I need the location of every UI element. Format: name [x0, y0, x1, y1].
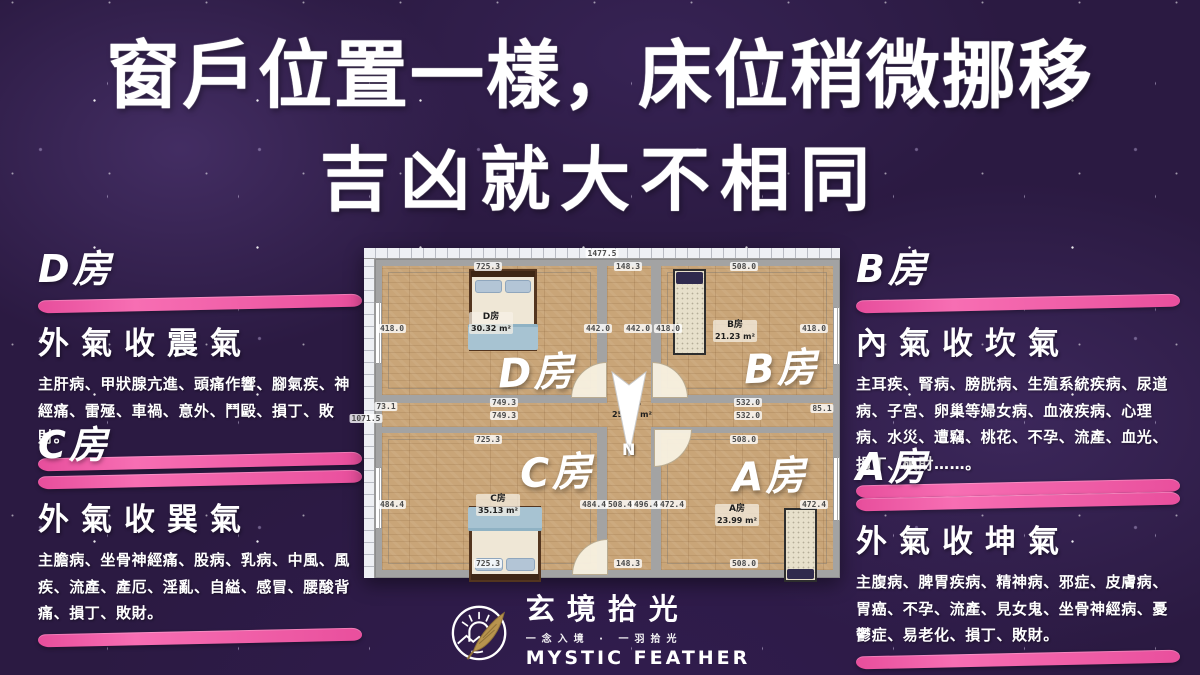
dimension-label: 418.0	[800, 324, 828, 333]
pink-brush-divider	[38, 470, 362, 490]
section-room-b-qi: 內氣收坎氣	[856, 318, 1180, 363]
room-c-big-label: C房	[519, 439, 594, 500]
dimension-label: 725.3	[474, 435, 502, 444]
section-room-b-title: B房	[856, 238, 1180, 293]
section-room-c-qi: 外氣收巽氣	[38, 494, 362, 539]
room-d-label: D房 30.32 m²	[469, 312, 513, 334]
dimension-label: 148.3	[614, 559, 642, 568]
bed-pillow	[676, 272, 703, 284]
pink-brush-divider	[856, 492, 1180, 512]
corridor-horizontal-floor	[382, 403, 833, 427]
section-room-d-qi: 外氣收震氣	[38, 318, 362, 363]
room-a-big-label: A房	[731, 443, 808, 504]
headline-line1: 窗戶位置一樣，床位稍微挪移	[0, 16, 1200, 123]
dimension-label: 484.4	[378, 500, 406, 509]
bed-room-b	[673, 269, 706, 355]
dimension-label: 508.4	[606, 500, 634, 509]
section-room-a-qi: 外氣收坤氣	[856, 516, 1180, 561]
dimension-label: 508.0	[730, 262, 758, 271]
dimension-label: 749.3	[490, 411, 518, 420]
compass-n-label: N	[622, 440, 635, 459]
section-room-a-title: A房	[856, 436, 1180, 491]
brand-name: 玄境拾光	[526, 594, 751, 626]
bed-pillow	[787, 569, 814, 579]
bed-room-d	[469, 269, 537, 351]
bed-room-c	[469, 506, 541, 582]
dimension-label: 725.3	[474, 559, 502, 568]
pink-brush-divider	[856, 294, 1180, 314]
bed-headboard	[471, 271, 535, 277]
dimension-label: 418.0	[654, 324, 682, 333]
dimension-label: 725.3	[474, 262, 502, 271]
brand-tagline: 一念入境 · 一羽拾光	[526, 629, 751, 645]
floor-plan-body	[375, 259, 840, 578]
window-room-a-right	[833, 457, 840, 521]
dimension-label: 472.4	[658, 500, 686, 509]
dimension-label: 472.4	[800, 500, 828, 509]
dimension-label: 496.4	[632, 500, 660, 509]
dimension-label: 418.0	[378, 324, 406, 333]
mystic-feather-logo-icon	[450, 601, 512, 663]
section-room-d-title: D房	[38, 238, 362, 293]
dimension-label: 442.0	[624, 324, 652, 333]
dimension-label: 508.0	[730, 435, 758, 444]
window-room-c-left	[375, 467, 382, 529]
brand-text-block: 玄境拾光 一念入境 · 一羽拾光 MYSTIC FEATHER	[526, 594, 751, 669]
section-room-c-title: C房	[38, 414, 362, 469]
brand-logo: 玄境拾光 一念入境 · 一羽拾光 MYSTIC FEATHER	[0, 594, 1200, 669]
dimension-label: 1071.5	[350, 414, 383, 423]
room-d-big-label: D房	[497, 339, 576, 400]
bed-pillows	[472, 279, 534, 294]
room-c-label: C房 35.13 m²	[476, 494, 520, 516]
dimension-label: 442.0	[584, 324, 612, 333]
window-room-d-left	[375, 302, 382, 364]
headline-line2: 吉凶就大不相同	[0, 124, 1200, 225]
dimension-label: 1477.5	[586, 249, 619, 258]
window-room-b-right	[833, 307, 840, 365]
brand-english-name: MYSTIC FEATHER	[526, 647, 751, 669]
room-a-label: A房 23.99 m²	[715, 504, 759, 526]
poster: 窗戶位置一樣，床位稍微挪移 吉凶就大不相同 D房 外氣收震氣 主肝病、甲狀腺亢進…	[0, 0, 1200, 675]
bed-room-a	[784, 508, 817, 582]
bed-headboard	[471, 574, 539, 580]
dimension-label: 85.1	[810, 404, 833, 413]
dimension-label: 749.3	[490, 398, 518, 407]
dimension-label: 532.0	[734, 398, 762, 407]
pink-brush-divider	[38, 294, 362, 314]
dimension-label: 484.4	[580, 500, 608, 509]
dimension-label: 148.3	[614, 262, 642, 271]
dimension-label: 532.0	[734, 411, 762, 420]
dimension-label: 508.0	[730, 559, 758, 568]
dimension-label: 73.1	[374, 402, 397, 411]
room-b-big-label: B房	[743, 335, 819, 396]
floor-plan: D房 30.32 m² B房 21.23 m² C房 35.13 m² A房 2…	[364, 248, 840, 578]
